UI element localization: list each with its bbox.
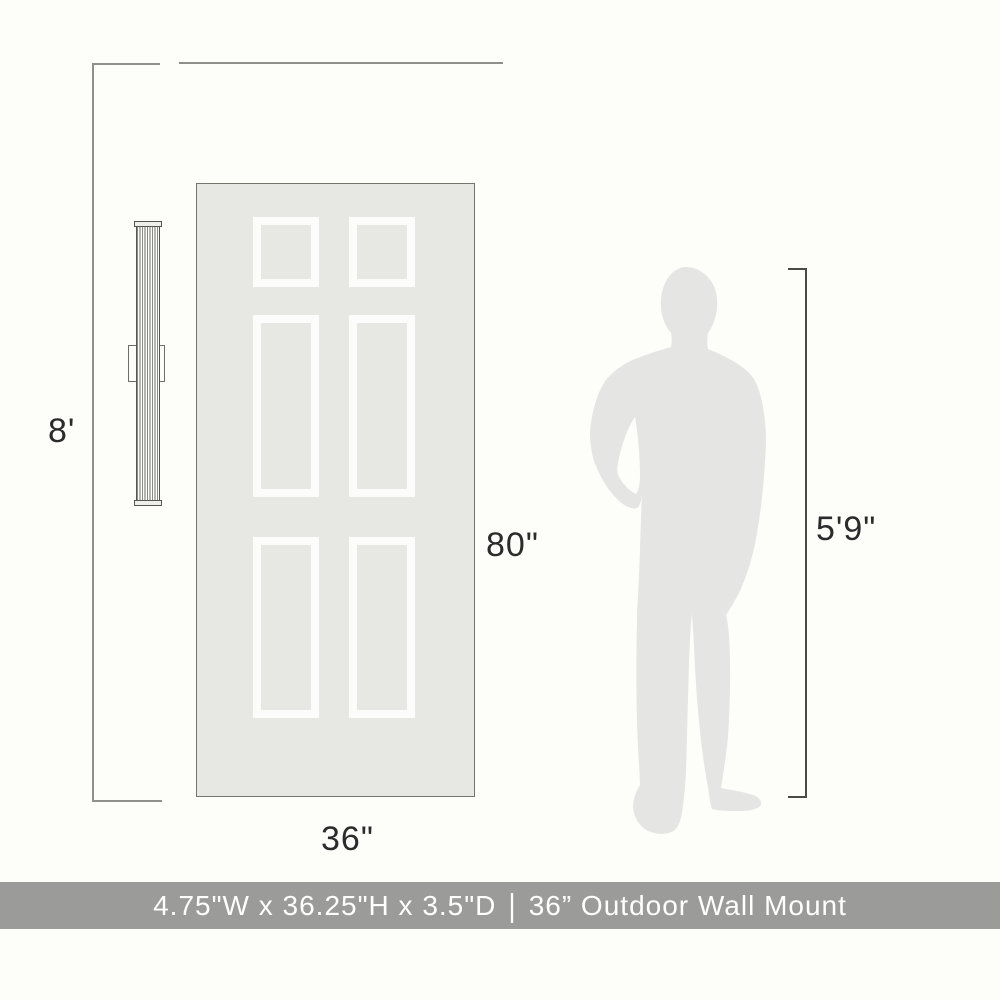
- footer-caption-bar: 4.75"W x 36.25"H x 3.5"D | 36” Outdoor W…: [0, 882, 1000, 929]
- diagram-canvas: 8' 80" 36" 5'9" 4.75"W x 36.25"H x 3.5"D…: [0, 0, 1000, 1000]
- person-height-bottom-tick: [788, 796, 807, 798]
- footer-separator: |: [508, 887, 516, 924]
- wall-height-line: [92, 63, 94, 802]
- wall-height-bottom-tick: [92, 800, 162, 802]
- sconce-bottom-cap: [134, 500, 162, 506]
- footer-dimensions-text: 4.75"W x 36.25"H x 3.5"D: [153, 890, 496, 922]
- person-height-line: [805, 268, 807, 798]
- person-height-top-tick: [788, 268, 807, 270]
- footer-product-name: 36” Outdoor Wall Mount: [529, 890, 847, 922]
- wall-height-top-tick: [92, 63, 160, 65]
- door-panel: [349, 537, 415, 718]
- six-panel-door: [196, 183, 475, 797]
- male-silhouette-icon: [590, 267, 767, 835]
- door-panel: [349, 315, 415, 497]
- wall-height-label: 8': [48, 412, 75, 451]
- door-panel: [253, 537, 319, 718]
- ceiling-line: [179, 62, 503, 64]
- door-panel: [253, 217, 319, 287]
- door-height-label: 80": [486, 526, 539, 565]
- person-height-label: 5'9": [816, 510, 876, 549]
- wall-sconce-icon: [136, 227, 160, 500]
- door-panel: [253, 315, 319, 497]
- door-panel: [349, 217, 415, 287]
- door-width-label: 36": [321, 820, 374, 859]
- sconce-top-cap: [134, 221, 162, 227]
